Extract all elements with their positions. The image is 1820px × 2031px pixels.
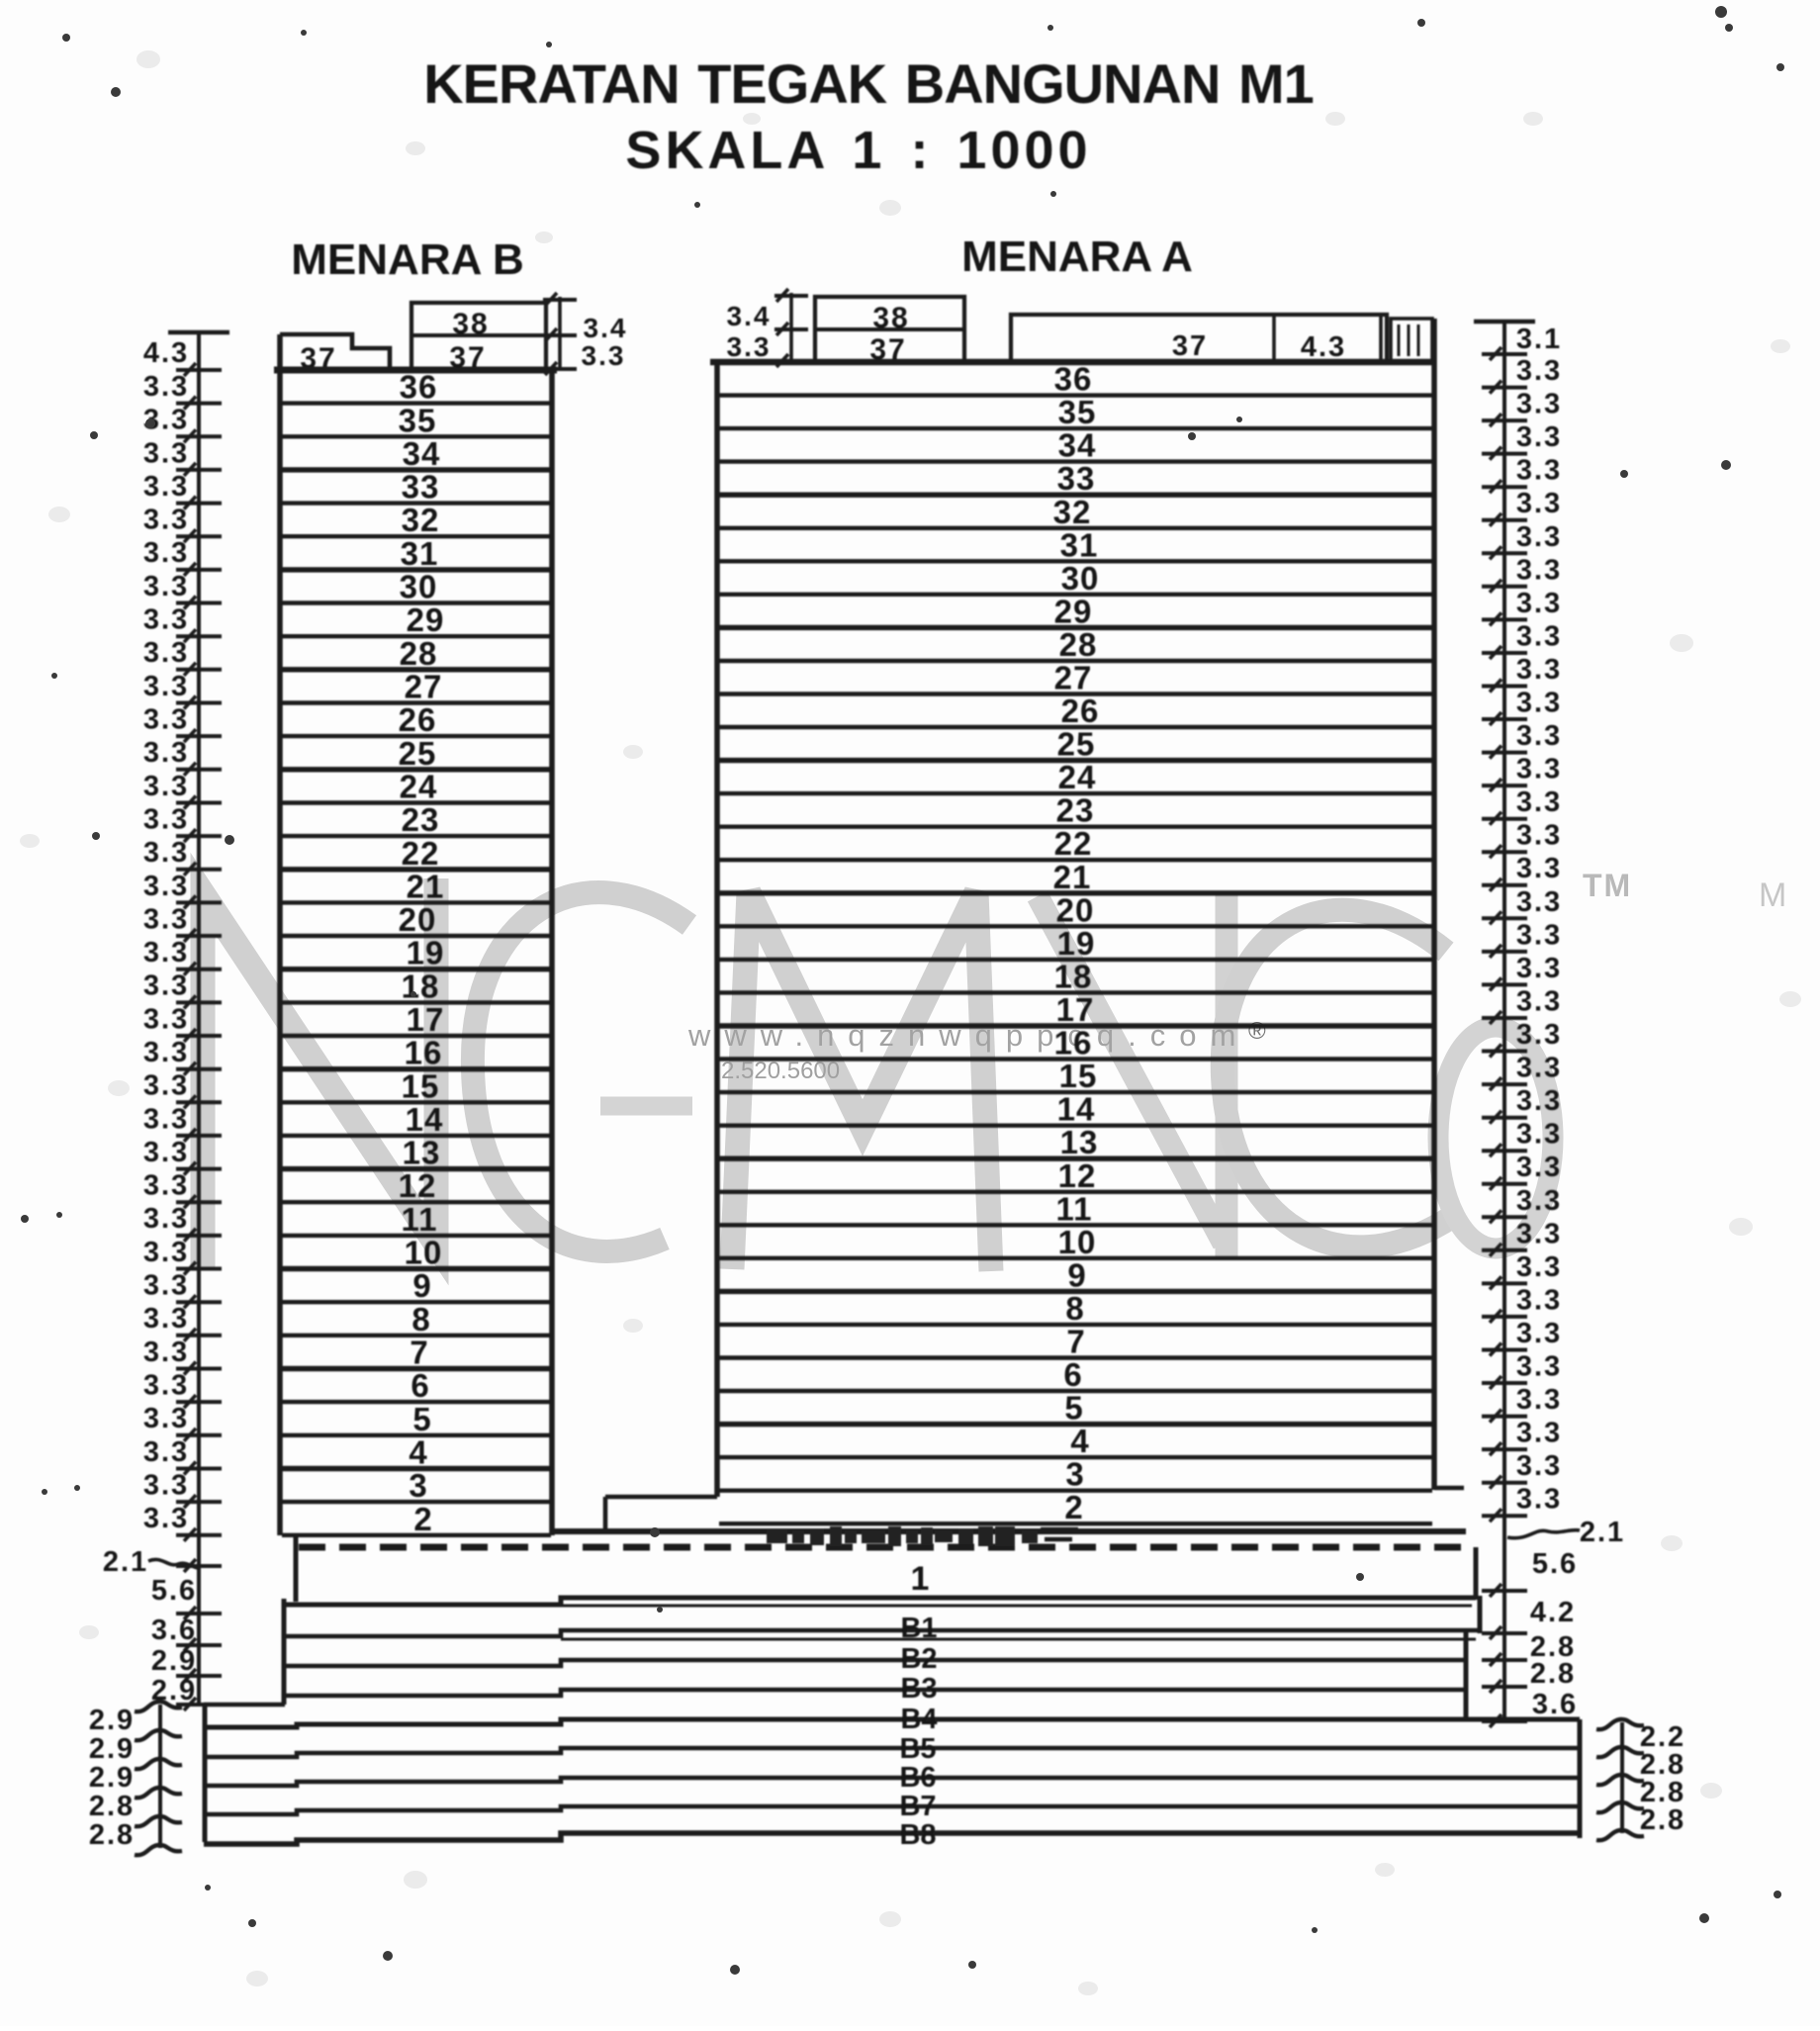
svg-text:2.8: 2.8 bbox=[1640, 1804, 1685, 1836]
svg-text:3.3: 3.3 bbox=[1516, 1418, 1562, 1449]
svg-text:4: 4 bbox=[1070, 1423, 1089, 1459]
svg-text:26: 26 bbox=[399, 701, 437, 738]
svg-text:5.6: 5.6 bbox=[151, 1575, 197, 1607]
svg-text:21: 21 bbox=[1053, 859, 1092, 895]
svg-text:3.3: 3.3 bbox=[143, 471, 189, 503]
svg-text:MENARA B: MENARA B bbox=[291, 235, 523, 284]
svg-text:3.3: 3.3 bbox=[143, 704, 189, 736]
svg-text:27: 27 bbox=[1054, 660, 1093, 696]
svg-text:3.3: 3.3 bbox=[143, 1470, 189, 1502]
svg-text:35: 35 bbox=[399, 402, 437, 438]
svg-text:36: 36 bbox=[1054, 361, 1093, 398]
svg-text:9: 9 bbox=[412, 1267, 431, 1304]
svg-text:3.6: 3.6 bbox=[1532, 1689, 1578, 1720]
svg-text:3.3: 3.3 bbox=[1516, 886, 1562, 918]
svg-text:3: 3 bbox=[1065, 1456, 1084, 1493]
svg-text:3.3: 3.3 bbox=[143, 1237, 189, 1268]
svg-text:34: 34 bbox=[1058, 427, 1097, 464]
svg-text:M: M bbox=[1759, 877, 1786, 914]
svg-text:3.3: 3.3 bbox=[1516, 1318, 1562, 1349]
svg-text:2.9: 2.9 bbox=[151, 1645, 197, 1677]
svg-text:20: 20 bbox=[1056, 891, 1095, 928]
svg-text:2.8: 2.8 bbox=[89, 1791, 135, 1822]
svg-text:3.3: 3.3 bbox=[143, 771, 189, 802]
svg-text:3.3: 3.3 bbox=[143, 737, 189, 769]
svg-text:4.3: 4.3 bbox=[1301, 331, 1346, 363]
svg-text:31: 31 bbox=[401, 535, 439, 572]
svg-text:3.3: 3.3 bbox=[143, 1203, 189, 1235]
svg-text:3.3: 3.3 bbox=[1516, 688, 1562, 719]
svg-text:35: 35 bbox=[1058, 394, 1097, 430]
svg-text:2: 2 bbox=[413, 1501, 432, 1537]
svg-text:6: 6 bbox=[1063, 1356, 1082, 1393]
svg-text:2.520.5600: 2.520.5600 bbox=[721, 1058, 840, 1084]
svg-text:9: 9 bbox=[1067, 1256, 1086, 1293]
svg-text:30: 30 bbox=[400, 569, 438, 605]
svg-text:3.3: 3.3 bbox=[143, 903, 189, 935]
svg-text:3.3: 3.3 bbox=[143, 1403, 189, 1434]
svg-text:3.3: 3.3 bbox=[143, 505, 189, 536]
svg-text:3.3: 3.3 bbox=[1516, 1053, 1562, 1084]
svg-text:3.3: 3.3 bbox=[143, 970, 189, 1002]
svg-text:3.3: 3.3 bbox=[1516, 720, 1562, 752]
svg-text:32: 32 bbox=[1053, 494, 1092, 530]
svg-text:15: 15 bbox=[1059, 1058, 1098, 1094]
svg-text:19: 19 bbox=[1057, 925, 1096, 962]
svg-text:3.3: 3.3 bbox=[1516, 1218, 1562, 1249]
svg-text:15: 15 bbox=[402, 1067, 440, 1104]
svg-text:16: 16 bbox=[405, 1035, 443, 1071]
svg-text:3.3: 3.3 bbox=[1516, 1251, 1562, 1283]
svg-text:37: 37 bbox=[869, 333, 906, 366]
svg-text:29: 29 bbox=[407, 601, 445, 638]
svg-text:3.3: 3.3 bbox=[143, 371, 189, 403]
svg-text:3.3: 3.3 bbox=[1516, 455, 1562, 487]
svg-text:B2: B2 bbox=[900, 1643, 937, 1675]
svg-text:13: 13 bbox=[403, 1135, 441, 1171]
svg-text:5: 5 bbox=[1064, 1390, 1083, 1427]
svg-text:3.3: 3.3 bbox=[143, 571, 189, 602]
svg-text:33: 33 bbox=[402, 469, 440, 506]
svg-text:3.1: 3.1 bbox=[1516, 323, 1562, 355]
svg-text:3.3: 3.3 bbox=[143, 671, 189, 702]
svg-text:11: 11 bbox=[1056, 1190, 1093, 1227]
svg-text:3.3: 3.3 bbox=[1516, 754, 1562, 785]
svg-text:3.3: 3.3 bbox=[1516, 1185, 1562, 1217]
svg-text:2: 2 bbox=[1064, 1489, 1083, 1525]
svg-text:3: 3 bbox=[409, 1467, 427, 1504]
svg-text:B6: B6 bbox=[899, 1762, 936, 1794]
svg-text:3.3: 3.3 bbox=[1516, 1152, 1562, 1183]
svg-text:MENARA A: MENARA A bbox=[961, 232, 1193, 281]
svg-text:14: 14 bbox=[406, 1101, 444, 1138]
svg-text:10: 10 bbox=[1058, 1224, 1097, 1260]
svg-text:3.3: 3.3 bbox=[1516, 421, 1562, 453]
svg-text:3.3: 3.3 bbox=[143, 871, 189, 902]
svg-text:3.4: 3.4 bbox=[727, 301, 772, 331]
svg-text:3.3: 3.3 bbox=[1516, 1019, 1562, 1051]
svg-text:32: 32 bbox=[402, 502, 440, 538]
svg-text:38: 38 bbox=[872, 302, 909, 334]
svg-text:4.3: 4.3 bbox=[143, 337, 189, 369]
svg-text:2.9: 2.9 bbox=[89, 1762, 135, 1794]
svg-text:1: 1 bbox=[911, 1560, 930, 1598]
svg-text:B3: B3 bbox=[900, 1673, 937, 1705]
svg-text:24: 24 bbox=[1058, 759, 1097, 795]
svg-text:13: 13 bbox=[1060, 1124, 1099, 1160]
svg-text:3.3: 3.3 bbox=[1516, 355, 1562, 387]
svg-text:7: 7 bbox=[409, 1335, 428, 1371]
svg-text:3.3: 3.3 bbox=[1516, 1284, 1562, 1316]
svg-text:B4: B4 bbox=[900, 1704, 937, 1735]
svg-text:2.9: 2.9 bbox=[89, 1705, 135, 1736]
svg-text:3.3: 3.3 bbox=[143, 1303, 189, 1335]
svg-text:3.3: 3.3 bbox=[143, 1037, 189, 1068]
svg-text:3.3: 3.3 bbox=[1516, 1351, 1562, 1383]
svg-text:3.3: 3.3 bbox=[1516, 853, 1562, 884]
svg-text:2.1: 2.1 bbox=[1580, 1517, 1625, 1548]
svg-text:3.3: 3.3 bbox=[1516, 953, 1562, 984]
svg-text:3.3: 3.3 bbox=[1516, 1450, 1562, 1482]
svg-text:27: 27 bbox=[405, 669, 443, 705]
svg-text:5.6: 5.6 bbox=[1532, 1548, 1578, 1580]
svg-text:3.3: 3.3 bbox=[143, 1270, 189, 1302]
svg-text:6: 6 bbox=[410, 1367, 429, 1404]
svg-text:21: 21 bbox=[407, 868, 445, 904]
svg-text:3.3: 3.3 bbox=[1516, 488, 1562, 519]
svg-text:37: 37 bbox=[1172, 330, 1208, 362]
svg-text:2.8: 2.8 bbox=[89, 1819, 135, 1851]
svg-text:3.3: 3.3 bbox=[1516, 620, 1562, 652]
svg-text:12: 12 bbox=[1058, 1157, 1097, 1194]
svg-text:24: 24 bbox=[400, 769, 438, 805]
svg-text:3.3: 3.3 bbox=[143, 1170, 189, 1202]
svg-text:www.nqznwqppcq.com: www.nqznwqppcq.com bbox=[687, 1018, 1249, 1053]
svg-text:8: 8 bbox=[411, 1301, 430, 1338]
svg-text:23: 23 bbox=[1056, 792, 1095, 829]
svg-text:3.3: 3.3 bbox=[143, 1137, 189, 1168]
svg-text:®: ® bbox=[1248, 1018, 1266, 1045]
svg-text:38: 38 bbox=[452, 308, 489, 340]
svg-text:28: 28 bbox=[400, 635, 438, 672]
svg-text:20: 20 bbox=[399, 901, 437, 938]
svg-text:B8: B8 bbox=[899, 1819, 936, 1851]
svg-text:33: 33 bbox=[1057, 460, 1096, 497]
svg-text:17: 17 bbox=[407, 1001, 445, 1038]
svg-text:3.3: 3.3 bbox=[1516, 588, 1562, 619]
svg-text:2.9: 2.9 bbox=[89, 1733, 135, 1765]
svg-text:3.3: 3.3 bbox=[1516, 654, 1562, 686]
svg-text:3.3: 3.3 bbox=[143, 837, 189, 869]
svg-text:23: 23 bbox=[402, 801, 440, 838]
svg-text:19: 19 bbox=[407, 935, 445, 971]
svg-text:3.3: 3.3 bbox=[143, 937, 189, 969]
svg-text:30: 30 bbox=[1061, 560, 1100, 597]
svg-text:3.3: 3.3 bbox=[143, 604, 189, 636]
svg-text:3.3: 3.3 bbox=[1516, 521, 1562, 553]
svg-text:26: 26 bbox=[1061, 692, 1100, 729]
svg-text:3.3: 3.3 bbox=[1516, 786, 1562, 818]
svg-text:3.3: 3.3 bbox=[143, 1370, 189, 1402]
svg-text:B7: B7 bbox=[899, 1791, 936, 1822]
svg-text:11: 11 bbox=[402, 1201, 438, 1238]
svg-text:16: 16 bbox=[1054, 1025, 1093, 1062]
svg-text:25: 25 bbox=[399, 735, 437, 772]
svg-text:14: 14 bbox=[1057, 1091, 1096, 1128]
svg-text:28: 28 bbox=[1059, 626, 1098, 663]
svg-text:3.3: 3.3 bbox=[143, 804, 189, 836]
svg-text:37: 37 bbox=[449, 341, 486, 374]
svg-text:2.1: 2.1 bbox=[103, 1546, 148, 1578]
svg-text:SKALA 1 : 1000: SKALA 1 : 1000 bbox=[625, 121, 1091, 180]
svg-text:3.3: 3.3 bbox=[1516, 554, 1562, 586]
svg-text:18: 18 bbox=[402, 968, 440, 1004]
svg-text:3.3: 3.3 bbox=[143, 1503, 189, 1534]
svg-text:3.3: 3.3 bbox=[1516, 389, 1562, 420]
svg-text:3.3: 3.3 bbox=[143, 437, 189, 469]
svg-text:3.3: 3.3 bbox=[143, 537, 189, 569]
svg-text:3.3: 3.3 bbox=[143, 1003, 189, 1035]
svg-text:3.3: 3.3 bbox=[1516, 820, 1562, 852]
svg-text:3.3: 3.3 bbox=[1516, 1384, 1562, 1416]
svg-text:8: 8 bbox=[1065, 1290, 1084, 1327]
svg-text:5: 5 bbox=[412, 1401, 431, 1437]
svg-text:3.3: 3.3 bbox=[582, 340, 626, 371]
svg-text:3.3: 3.3 bbox=[727, 331, 772, 362]
svg-text:3.3: 3.3 bbox=[1516, 1484, 1562, 1516]
svg-text:4: 4 bbox=[409, 1434, 427, 1471]
svg-text:34: 34 bbox=[403, 435, 441, 472]
svg-text:22: 22 bbox=[402, 835, 440, 872]
svg-text:10: 10 bbox=[405, 1235, 443, 1271]
svg-text:TM: TM bbox=[1583, 868, 1632, 903]
svg-text:3.3: 3.3 bbox=[1516, 919, 1562, 951]
svg-text:12: 12 bbox=[399, 1167, 437, 1204]
svg-text:3.3: 3.3 bbox=[1516, 985, 1562, 1017]
svg-text:31: 31 bbox=[1060, 526, 1099, 563]
svg-text:29: 29 bbox=[1054, 593, 1093, 629]
svg-text:3.3: 3.3 bbox=[143, 1436, 189, 1468]
svg-text:3.3: 3.3 bbox=[143, 637, 189, 669]
svg-text:3.3: 3.3 bbox=[1516, 1119, 1562, 1151]
svg-text:3.3: 3.3 bbox=[143, 1337, 189, 1368]
svg-text:B1: B1 bbox=[900, 1613, 937, 1644]
svg-text:18: 18 bbox=[1054, 958, 1093, 994]
svg-text:4.2: 4.2 bbox=[1530, 1597, 1576, 1628]
svg-text:25: 25 bbox=[1057, 726, 1096, 763]
svg-text:3.4: 3.4 bbox=[584, 313, 628, 343]
svg-text:2.8: 2.8 bbox=[1530, 1658, 1576, 1690]
svg-text:7: 7 bbox=[1066, 1324, 1085, 1360]
svg-text:22: 22 bbox=[1054, 825, 1093, 862]
svg-text:KERATAN TEGAK BANGUNAN M1: KERATAN TEGAK BANGUNAN M1 bbox=[423, 52, 1314, 115]
svg-text:3.6: 3.6 bbox=[151, 1615, 197, 1646]
svg-text:17: 17 bbox=[1056, 991, 1095, 1028]
svg-text:3.3: 3.3 bbox=[143, 1103, 189, 1135]
svg-text:3.3: 3.3 bbox=[1516, 1085, 1562, 1117]
svg-text:B5: B5 bbox=[899, 1733, 936, 1765]
svg-text:3.3: 3.3 bbox=[143, 1070, 189, 1102]
svg-text:36: 36 bbox=[400, 369, 438, 406]
